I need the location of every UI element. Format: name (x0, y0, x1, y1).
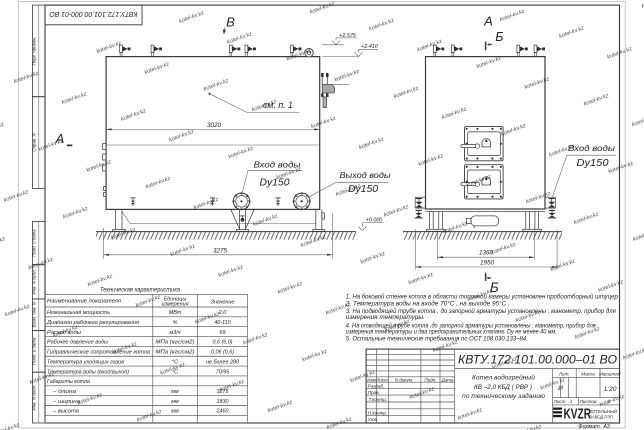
svg-text:Лист: Лист (375, 377, 388, 382)
svg-text:1:20: 1:20 (604, 386, 617, 393)
svg-text:Т.контр.: Т.контр. (369, 397, 388, 402)
svg-text:0,06 (0,6): 0,06 (0,6) (211, 350, 234, 356)
svg-text:Инв. N подл.: Инв. N подл. (32, 385, 37, 411)
svg-text:Утв.: Утв. (368, 417, 378, 422)
svg-text:+2.410: +2.410 (361, 44, 378, 50)
svg-text:N докум.: N докум. (395, 377, 414, 382)
svg-text:1830: 1830 (217, 399, 229, 405)
svg-text:Габариты котла: Габариты котла (47, 379, 90, 385)
svg-text:0,6 (6,0): 0,6 (6,0) (212, 340, 232, 346)
svg-text:Вход воды: Вход воды (568, 144, 615, 153)
svg-text:Взам. инв. N: Взам. инв. N (32, 301, 37, 327)
svg-text:Дата: Дата (440, 377, 454, 382)
svg-text:Справ. N: Справ. N (32, 132, 37, 151)
svg-text:Лит.: Лит. (558, 371, 570, 376)
svg-text:Температура воды (вход/выход): Температура воды (вход/выход) (47, 369, 129, 375)
svg-text:5. Остальные технические треб: 5. Остальные технические требования по О… (346, 336, 528, 343)
svg-text:мм: мм (171, 409, 179, 415)
svg-text:3275: 3275 (213, 247, 228, 254)
svg-text:Dy150: Dy150 (577, 158, 610, 169)
svg-text:69: 69 (220, 330, 226, 336)
svg-text:Номинальная мощность: Номинальная мощность (47, 310, 110, 316)
svg-text:Котел водогрейный: Котел водогрейный (472, 373, 535, 381)
svg-text:Лист: Лист (553, 399, 566, 404)
svg-text:Наименование показателя: Наименование показателя (47, 299, 121, 305)
svg-text:КВТУ.172.101.00.000–01 ВО: КВТУ.172.101.00.000–01 ВО (458, 352, 618, 366)
svg-text:Перв. примен.: Перв. примен. (32, 36, 37, 65)
svg-text:МВт: МВт (169, 310, 182, 316)
svg-text:В: В (226, 15, 235, 30)
svg-text:Выход воды: Выход воды (340, 171, 391, 180)
svg-text:измерения температуры и два пр: измерения температуры и два предохраните… (346, 329, 557, 336)
svg-text:1: 1 (570, 399, 573, 404)
svg-text:2460: 2460 (216, 409, 229, 415)
svg-text:2. Температура воды на входе: 2. Температура воды на входе 70°С , на в… (345, 301, 510, 308)
svg-text:1950: 1950 (480, 260, 495, 267)
svg-text:Подп.: Подп. (424, 377, 436, 382)
svg-text:Инв. N дубл.: Инв. N дубл. (32, 269, 37, 294)
svg-text:Подп. и дата: Подп. и дата (32, 229, 37, 257)
svg-text:%: % (173, 320, 178, 326)
svg-text:Рабочее давление воды: Рабочее давление воды (47, 340, 108, 346)
svg-text:МПа (кгс/см2): МПа (кгс/см2) (156, 350, 195, 356)
svg-text:Значение: Значение (211, 299, 235, 305)
svg-text:Б: Б (495, 30, 503, 44)
svg-text:МПа (кгс/см2): МПа (кгс/см2) (156, 340, 195, 346)
svg-text:40-110: 40-110 (214, 320, 230, 326)
svg-text:3020: 3020 (207, 122, 222, 129)
svg-text:мм: мм (171, 389, 179, 395)
svg-text:Листов: Листов (579, 399, 597, 404)
svg-text:Подп. и дата: Подп. и дата (32, 337, 37, 365)
svg-text:– ширина: – ширина (52, 399, 80, 405)
svg-text:KVZR: KVZR (564, 407, 592, 423)
svg-text:Н.контр.: Н.контр. (368, 410, 387, 415)
svg-text:А: А (483, 14, 493, 29)
svg-text:И: И (558, 385, 563, 392)
svg-text:Диапазон рабочего регулировани: Диапазон рабочего регулирования (46, 320, 139, 326)
svg-text:Пров.: Пров. (368, 390, 380, 395)
svg-text:Температура уходящих газов: Температура уходящих газов (47, 359, 124, 365)
svg-text:КВТУ.172.101.00.000-01 ВО: КВТУ.172.101.00.000-01 ВО (49, 10, 137, 19)
svg-text:Техническая характеристика: Техническая характеристика (100, 287, 180, 294)
svg-text:Dy150: Dy150 (260, 177, 291, 188)
svg-text:КОТЕЛЬНЫЙ: КОТЕЛЬНЫЙ (590, 409, 618, 414)
svg-text:Формат: Формат (578, 424, 600, 430)
svg-text:мм: мм (171, 399, 179, 405)
svg-text:КВ –2,0 КБД ( РВР ): КВ –2,0 КБД ( РВР ) (474, 384, 532, 391)
svg-text:ЗАВОД РЭП: ЗАВОД РЭП (590, 415, 614, 420)
svg-text:по техническому заданию: по техническому заданию (462, 392, 545, 400)
svg-text:Масштаб: Масштаб (599, 371, 621, 376)
svg-text:Гидравлическое сопротивление к: Гидравлическое сопротивление котла (47, 350, 150, 356)
svg-text:не более 280: не более 280 (206, 359, 239, 365)
svg-text:А3: А3 (602, 424, 610, 430)
svg-text:Масса: Масса (581, 371, 595, 376)
svg-text:70/95: 70/95 (216, 369, 230, 375)
svg-text:измерения температуры.: измерения температуры. (346, 314, 425, 321)
svg-text:– высота: – высота (52, 409, 79, 415)
svg-text:+2.575: +2.575 (339, 33, 357, 39)
svg-text:Разраб.: Разраб. (368, 384, 385, 389)
svg-text:– длина: – длина (52, 389, 76, 395)
svg-text:измерения: измерения (162, 302, 189, 308)
svg-text:м3/ч: м3/ч (170, 330, 181, 336)
svg-text:+0.000: +0.000 (366, 218, 383, 224)
